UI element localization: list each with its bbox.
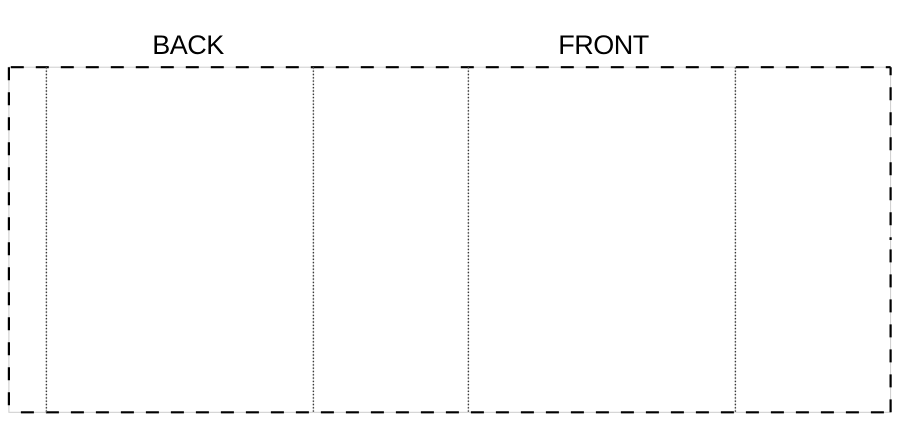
svg-text:FRONT: FRONT bbox=[558, 30, 648, 60]
svg-text:BACK: BACK bbox=[152, 30, 224, 60]
